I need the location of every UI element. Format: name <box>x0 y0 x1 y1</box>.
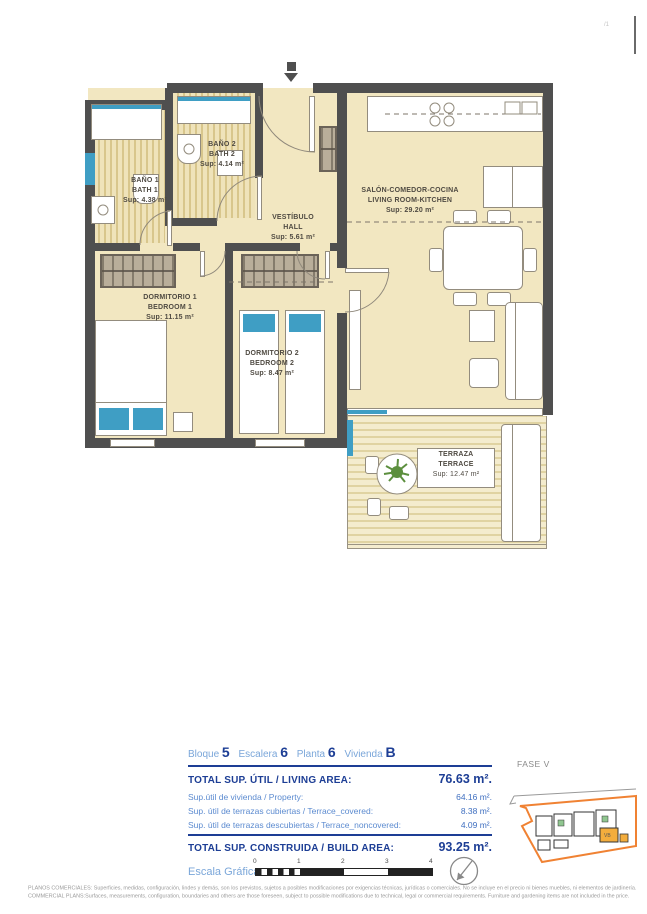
room-name-en: BATH 1 <box>95 186 195 196</box>
sofa <box>505 302 543 400</box>
terrace-railing <box>546 416 547 549</box>
scale-segment <box>256 869 300 875</box>
room-name-es: SALÓN-COMEDOR-COCINA <box>335 186 485 196</box>
pillow <box>99 408 129 430</box>
terrace-bench <box>501 424 541 542</box>
sofa-cushion-line <box>515 303 516 399</box>
divider <box>188 765 492 767</box>
wall <box>225 243 300 251</box>
breakdown-row: Sup. útil de terrazas descubiertas / Ter… <box>188 820 492 830</box>
room-area: Sup: 8.47 m² <box>222 369 322 379</box>
terrace-railing <box>347 544 547 545</box>
scale-tick: 0 <box>253 858 257 865</box>
fine-print-line2: COMMERCIAL PLANS:Surfaces, measurements,… <box>28 892 639 900</box>
window <box>255 439 305 447</box>
room-name-en: LIVING ROOM-KITCHEN <box>335 196 485 206</box>
unit-value: 5 <box>222 744 230 760</box>
corner-mark: /1 <box>604 22 609 28</box>
unit-label: Vivienda <box>344 749 382 760</box>
terrace-glass-panel <box>347 420 353 456</box>
scale-tick: 1 <box>297 858 301 865</box>
entrance-marker-icon <box>287 62 296 71</box>
room-name-es: BAÑO 1 <box>95 176 195 186</box>
door-leaf <box>345 268 389 273</box>
chair <box>453 292 477 306</box>
wall <box>85 243 140 251</box>
room-label-bath2: BAÑO 2 BATH 2 Sup: 4.14 m² <box>172 140 272 170</box>
room-name-es: DORMITORIO 1 <box>120 293 220 303</box>
breakdown-value: 64.16 m². <box>456 792 492 802</box>
wall <box>330 243 337 251</box>
unit-label: Bloque <box>188 749 219 760</box>
bathtub-edge <box>178 97 250 101</box>
chair <box>367 498 381 516</box>
wall <box>173 243 200 251</box>
room-area: Sup: 4.14 m² <box>172 160 272 170</box>
room-label-terrace: TERRAZA TERRACE Sup: 12.47 m² <box>421 450 491 480</box>
bathtub-edge <box>92 105 161 109</box>
door-leaf <box>325 251 330 279</box>
door-leaf <box>309 96 315 152</box>
unit-line: Bloque 5 Escalera 6 Planta 6 Vivienda B <box>188 744 492 760</box>
terrace-glass-accent <box>347 410 387 414</box>
room-name-en: TERRACE <box>421 460 491 470</box>
coffee-table <box>469 310 495 342</box>
minimap-unit-label: VB <box>604 833 611 839</box>
room-label-bath1: BAÑO 1 BATH 1 Sup: 4.38 m² <box>95 176 195 206</box>
room-name-es: VESTÍBULO <box>243 213 343 223</box>
room-label-bedroom1: DORMITORIO 1 BEDROOM 1 Sup: 11.15 m² <box>120 293 220 323</box>
wardrobe <box>241 254 319 288</box>
room-name-en: HALL <box>243 223 343 233</box>
legal-fine-print: PLANOS COMERCIALES: Superficies, medidas… <box>28 884 639 900</box>
chair <box>487 210 511 224</box>
entrance-arrow-icon <box>284 73 298 82</box>
floor-plan: BAÑO 1 BATH 1 Sup: 4.38 m² BAÑO 2 BATH 2… <box>85 58 560 558</box>
scale-label: Escala Gráfica <box>188 866 260 878</box>
kitchen-counter <box>367 96 543 132</box>
scale-tick: 2 <box>341 858 345 865</box>
scale-segment <box>300 869 344 875</box>
island-divider <box>512 167 513 207</box>
dining-table <box>443 226 523 290</box>
door-leaf <box>200 251 205 277</box>
bench-cushion-line <box>512 425 513 541</box>
divider <box>188 834 492 836</box>
room-name-en: BEDROOM 2 <box>222 359 322 369</box>
scale-bar-body <box>255 868 433 876</box>
unit-value: 6 <box>280 744 288 760</box>
chair <box>429 248 443 272</box>
room-name-en: BATH 2 <box>172 150 272 160</box>
room-area: Sup: 5.61 m² <box>243 233 343 243</box>
armchair <box>469 358 499 388</box>
bed-line <box>96 402 166 403</box>
total-util-label: TOTAL SUP. ÚTIL / LIVING AREA: <box>188 775 352 786</box>
scale-bar: 0 1 2 3 4 <box>255 858 433 880</box>
wall <box>313 83 553 93</box>
room-name-en: BEDROOM 1 <box>120 303 220 313</box>
window <box>110 439 155 447</box>
wardrobe <box>100 254 176 288</box>
phase-label: FASE V <box>517 759 550 769</box>
room-area: Sup: 11.15 m² <box>120 313 220 323</box>
pillow <box>243 314 275 332</box>
corner-line <box>634 16 636 54</box>
wall <box>165 218 217 226</box>
room-label-living: SALÓN-COMEDOR-COCINA LIVING ROOM-KITCHEN… <box>335 186 485 216</box>
breakdown-row: Sup.útil de vivienda / Property: 64.16 m… <box>188 792 492 802</box>
chair <box>523 248 537 272</box>
door-leaf <box>167 210 172 246</box>
unit-label: Escalera <box>239 749 278 760</box>
room-name-es: DORMITORIO 2 <box>222 349 322 359</box>
chair <box>389 506 409 520</box>
phase-minimap: VB <box>508 774 642 874</box>
breakdown-label: Sup. útil de terrazas cubiertas / Terrac… <box>188 806 373 816</box>
scale-tick: 4 <box>429 858 433 865</box>
total-built-label: TOTAL SUP. CONSTRUIDA / BUILD AREA: <box>188 843 394 854</box>
plan-sheet: /1 <box>0 0 647 914</box>
room-area: Sup: 12.47 m² <box>421 470 491 480</box>
unit-value: 6 <box>328 744 336 760</box>
pillow <box>133 408 163 430</box>
kitchen-island <box>483 166 543 208</box>
total-util-value: 76.63 m². <box>438 772 492 786</box>
wall <box>337 313 347 448</box>
breakdown-row: Sup. útil de terrazas cubiertas / Terrac… <box>188 806 492 816</box>
room-label-bedroom2: DORMITORIO 2 BEDROOM 2 Sup: 8.47 m² <box>222 349 322 379</box>
room-name-es: TERRAZA <box>421 450 491 460</box>
breakdown-value: 4.09 m². <box>461 820 492 830</box>
hall-closet <box>319 126 337 172</box>
room-area: Sup: 4.38 m² <box>95 196 195 206</box>
scale-tick: 3 <box>385 858 389 865</box>
total-util-row: TOTAL SUP. ÚTIL / LIVING AREA: 76.63 m². <box>188 772 492 786</box>
window <box>85 153 95 185</box>
pillow <box>289 314 321 332</box>
wall <box>225 243 233 448</box>
breakdown-value: 8.38 m². <box>461 806 492 816</box>
fine-print-line1: PLANOS COMERCIALES: Superficies, medidas… <box>28 884 639 892</box>
total-built-value: 93.25 m². <box>438 840 492 854</box>
breakdown-label: Sup. útil de terrazas descubiertas / Ter… <box>188 820 401 830</box>
wall <box>167 83 263 93</box>
nightstand <box>173 412 193 432</box>
wall <box>543 88 553 415</box>
scale-segment <box>388 869 432 875</box>
terrace-railing <box>347 548 547 549</box>
room-label-hall: VESTÍBULO HALL Sup: 5.61 m² <box>243 213 343 243</box>
unit-label: Planta <box>297 749 325 760</box>
tv-bench <box>349 290 361 390</box>
total-built-row: TOTAL SUP. CONSTRUIDA / BUILD AREA: 93.2… <box>188 840 492 854</box>
room-area: Sup: 29.20 m² <box>335 206 485 216</box>
room-name-es: BAÑO 2 <box>172 140 272 150</box>
breakdown-label: Sup.útil de vivienda / Property: <box>188 792 303 802</box>
unit-value: B <box>385 744 395 760</box>
north-arrow-icon <box>447 854 481 888</box>
bathtub <box>91 104 162 140</box>
chair <box>365 456 379 474</box>
scale-segment <box>344 869 388 875</box>
